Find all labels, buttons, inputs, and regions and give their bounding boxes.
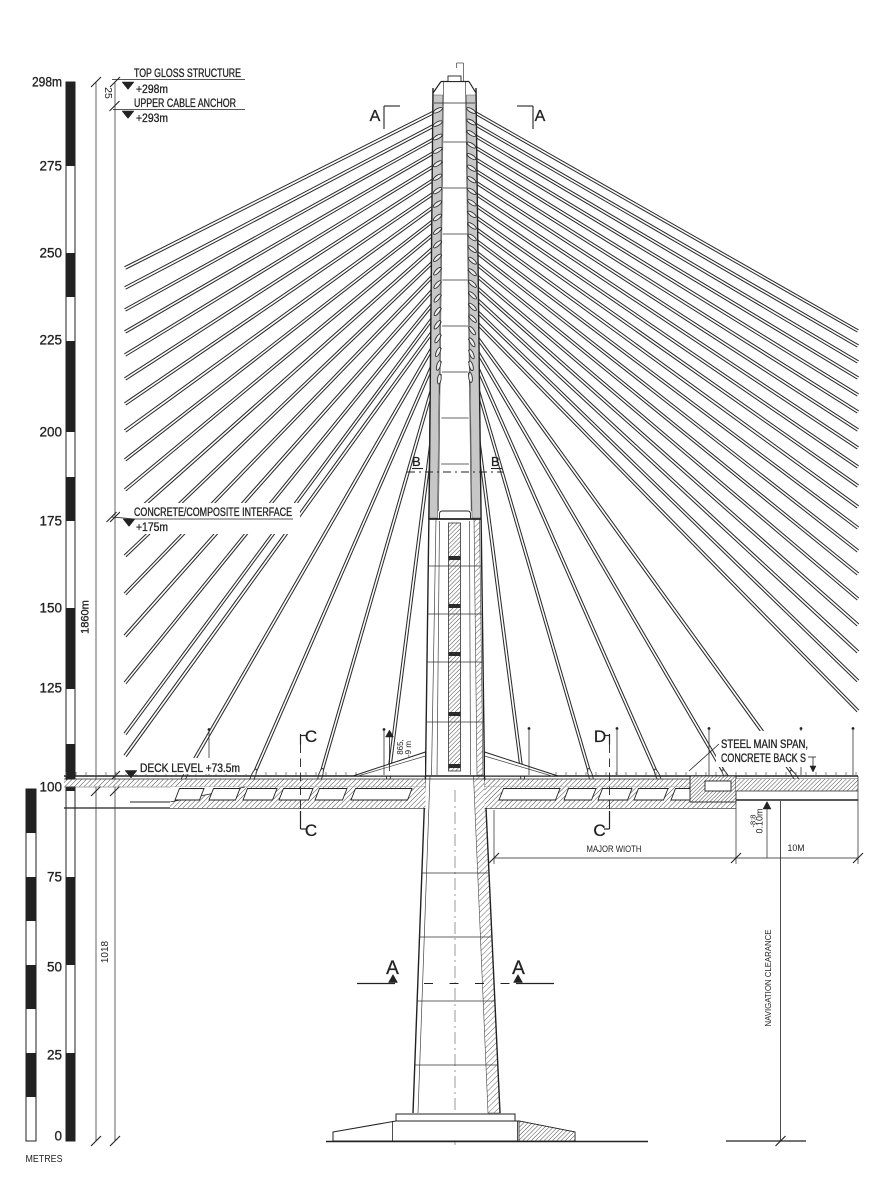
svg-text:298m: 298m [32,75,62,90]
svg-text:25: 25 [47,1048,62,1063]
svg-text:+175m: +175m [136,522,168,534]
svg-text:150: 150 [39,601,62,616]
svg-text:200: 200 [39,425,62,440]
svg-text:STEEL MAIN SPAN,: STEEL MAIN SPAN, [721,739,808,751]
svg-text:50: 50 [47,960,62,975]
svg-text:C: C [305,821,317,840]
svg-text:100: 100 [39,780,62,795]
svg-text:+293m: +293m [136,113,168,125]
svg-text:MAJOR WIOTH: MAJOR WIOTH [587,844,642,855]
svg-text:10M: 10M [788,843,805,854]
svg-text:0: 0 [54,1129,62,1144]
svg-text:-9 m: -9 m [404,741,413,757]
svg-text:TOP GLOSS STRUCTURE: TOP GLOSS STRUCTURE [134,68,241,80]
svg-text:CONCRETE/COMPOSITE INTERFACE: CONCRETE/COMPOSITE INTERFACE [134,507,292,519]
svg-text:1018: 1018 [100,940,111,963]
svg-text:A: A [535,108,546,125]
svg-text:250: 250 [39,246,62,261]
svg-text:METRES: METRES [26,1153,63,1165]
svg-text:A: A [370,108,381,125]
svg-text:125: 125 [39,681,62,696]
svg-text:B: B [491,454,500,469]
svg-text:175: 175 [39,514,62,529]
svg-text:UPPER CABLE ANCHOR: UPPER CABLE ANCHOR [134,98,236,110]
svg-text:CONCRETE BACK S: CONCRETE BACK S [721,753,806,765]
svg-text:1860m: 1860m [80,600,92,634]
svg-text:75: 75 [47,870,62,885]
svg-text:B: B [412,454,421,469]
svg-text:DECK LEVEL +73.5m: DECK LEVEL +73.5m [140,763,240,775]
svg-text:C: C [593,821,605,840]
svg-text:NAVIGATION CLEARANCE: NAVIGATION CLEARANCE [763,929,773,1026]
svg-text:D: D [594,727,606,746]
svg-text:275: 275 [39,159,62,174]
svg-text:+298m: +298m [136,84,168,96]
svg-text:225: 225 [39,333,62,348]
svg-text:25: 25 [102,87,114,99]
svg-text:C: C [305,727,317,746]
svg-text:-8:8: -8:8 [749,815,758,828]
